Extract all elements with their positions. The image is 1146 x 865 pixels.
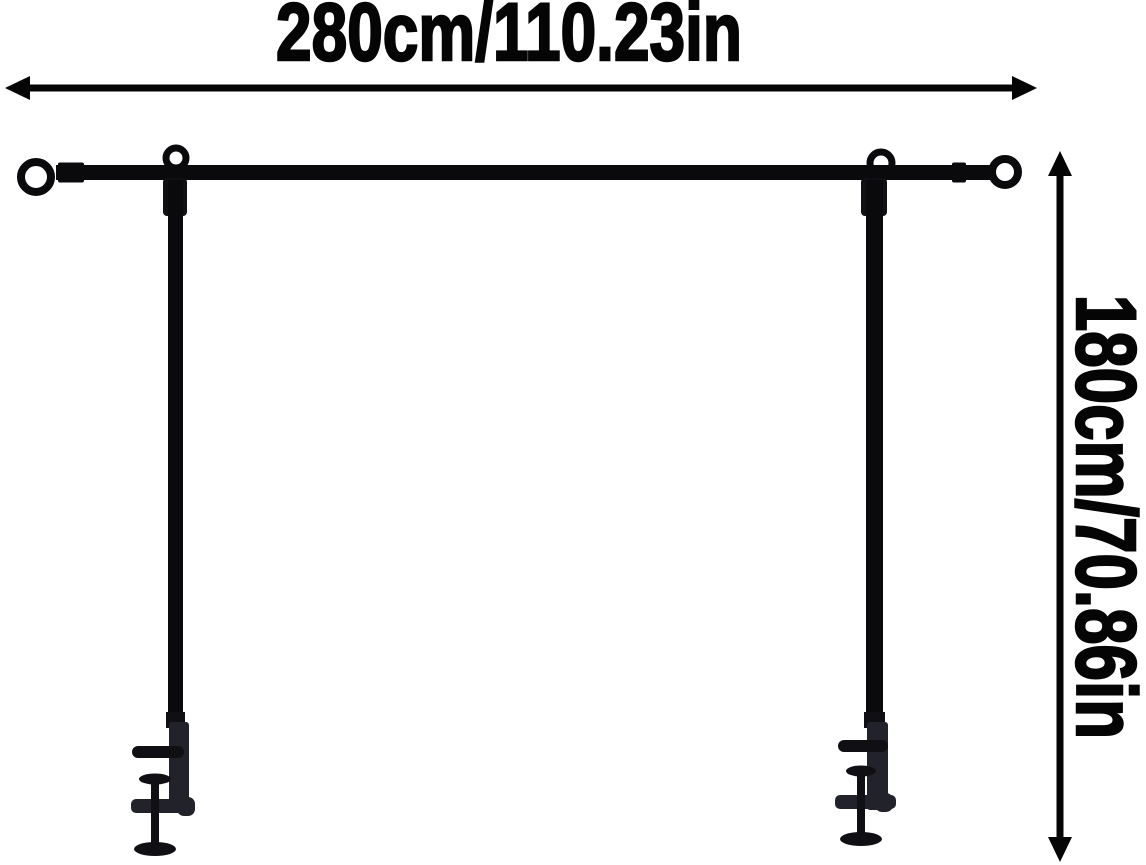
left-end-ring xyxy=(21,162,51,192)
right-clamp-bottom-arm xyxy=(835,795,896,809)
left-table-clamp xyxy=(131,722,195,856)
left-clamp-foot-knob xyxy=(134,842,176,856)
width-arrow-left-head-icon xyxy=(5,76,30,100)
right-clamp-foot-knob xyxy=(840,832,882,846)
height-arrow-bottom-head-icon xyxy=(1048,837,1072,862)
stand-diagram-canvas xyxy=(0,0,1146,865)
left-clamp-screw xyxy=(151,780,159,846)
left-clamp-pad-disc xyxy=(139,774,171,785)
left-rod-sleeve xyxy=(58,163,84,183)
left-pole xyxy=(168,180,183,714)
left-clamp-bottom-arm xyxy=(131,799,194,813)
height-arrow xyxy=(1048,151,1072,862)
left-clamp-top-arm xyxy=(132,746,184,758)
height-arrow-top-head-icon xyxy=(1048,151,1072,176)
right-table-clamp xyxy=(835,722,896,846)
width-arrow-right-head-icon xyxy=(1012,76,1037,100)
product-dimension-diagram: 280cm/110.23in 180cm/70.86in xyxy=(0,0,1146,865)
width-arrow xyxy=(5,76,1037,100)
crossbar-rod xyxy=(56,165,992,180)
right-end-ring xyxy=(992,159,1018,185)
right-clamp-top-arm xyxy=(838,740,888,752)
right-clamp-screw xyxy=(857,772,865,836)
right-clamp-pad-disc xyxy=(846,766,876,777)
right-pole xyxy=(866,180,883,714)
right-rod-sleeve xyxy=(952,163,966,183)
